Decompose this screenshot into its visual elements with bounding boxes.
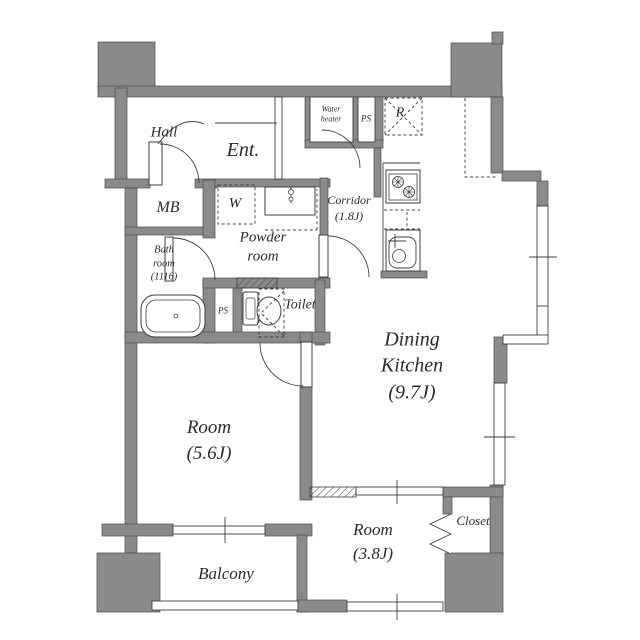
vanity-sink-icon <box>265 187 315 215</box>
floorplan-drawing <box>0 0 640 640</box>
room56-door-arc <box>260 343 303 386</box>
room-label-bath-room: Bath room (1116) <box>151 244 177 285</box>
label-meter-box: MB <box>156 198 179 218</box>
label-washer: W <box>229 195 242 214</box>
room-label-corridor: Corridor (1.8J) <box>327 192 370 224</box>
partition-dk-room38 <box>356 487 443 495</box>
window-room56-balcony <box>173 526 265 534</box>
kitchen-sink-icon <box>386 230 420 271</box>
label-ps-lower: PS <box>218 305 228 316</box>
label-ps-upper: PS <box>361 113 371 124</box>
window-room38-south <box>347 602 443 611</box>
closet-bifold-door <box>430 514 451 554</box>
floorplan-page: Hall Ent. Water heater PS R MB W Corrido… <box>0 0 640 640</box>
room38-sliding-door <box>310 487 356 497</box>
room-label-powder-room: Powder room <box>240 228 287 266</box>
room-label-hall: Hall <box>151 124 178 143</box>
toilet-icon <box>243 292 281 325</box>
room-label-balcony: Balcony <box>198 562 254 586</box>
counter-joint <box>384 210 420 229</box>
powder-door-leaf <box>319 235 328 277</box>
entrance-step-line <box>275 97 282 179</box>
windows <box>152 97 548 611</box>
window-dk-east-upper <box>537 206 548 336</box>
bathtub-icon <box>141 295 205 337</box>
room56-door-leaf <box>301 342 312 387</box>
label-refrigerator: R <box>396 104 405 122</box>
room-label-closet: Closet <box>456 513 489 529</box>
balcony-railing <box>152 601 298 610</box>
window-dk-east-lower <box>494 383 505 485</box>
toilet-sliding-door <box>237 278 277 288</box>
room-label-room38: Room (3.8J) <box>353 518 393 566</box>
stove-icon <box>386 170 420 203</box>
room-label-entrance: Ent. <box>227 137 260 163</box>
label-water-heater: Water heater <box>321 104 341 123</box>
front-door-leaf <box>149 142 162 185</box>
front-door-arc <box>160 144 199 183</box>
window-dk-sill <box>503 335 548 344</box>
room-label-room56: Room (5.6J) <box>187 415 232 467</box>
bath-door-arc <box>173 238 215 280</box>
room-label-dining-kitchen: Dining Kitchen (9.7J) <box>381 326 443 405</box>
room-label-toilet: Toilet <box>284 296 315 314</box>
powder-door-arc <box>328 236 369 277</box>
